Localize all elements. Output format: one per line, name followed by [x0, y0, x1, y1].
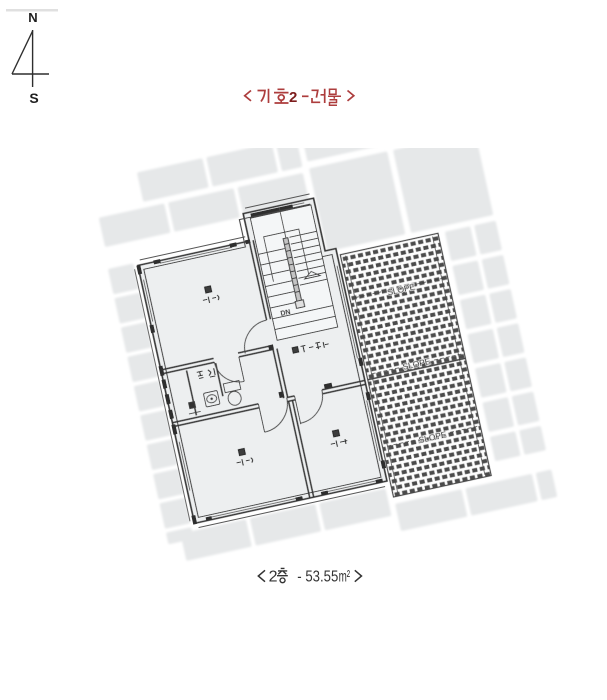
- svg-text:N: N: [28, 10, 37, 25]
- svg-text:2: 2: [269, 569, 278, 586]
- svg-text:m²: m²: [339, 569, 351, 586]
- svg-text:2: 2: [289, 89, 297, 106]
- svg-text:S: S: [29, 90, 38, 106]
- svg-text:- 53.55: - 53.55: [297, 569, 338, 586]
